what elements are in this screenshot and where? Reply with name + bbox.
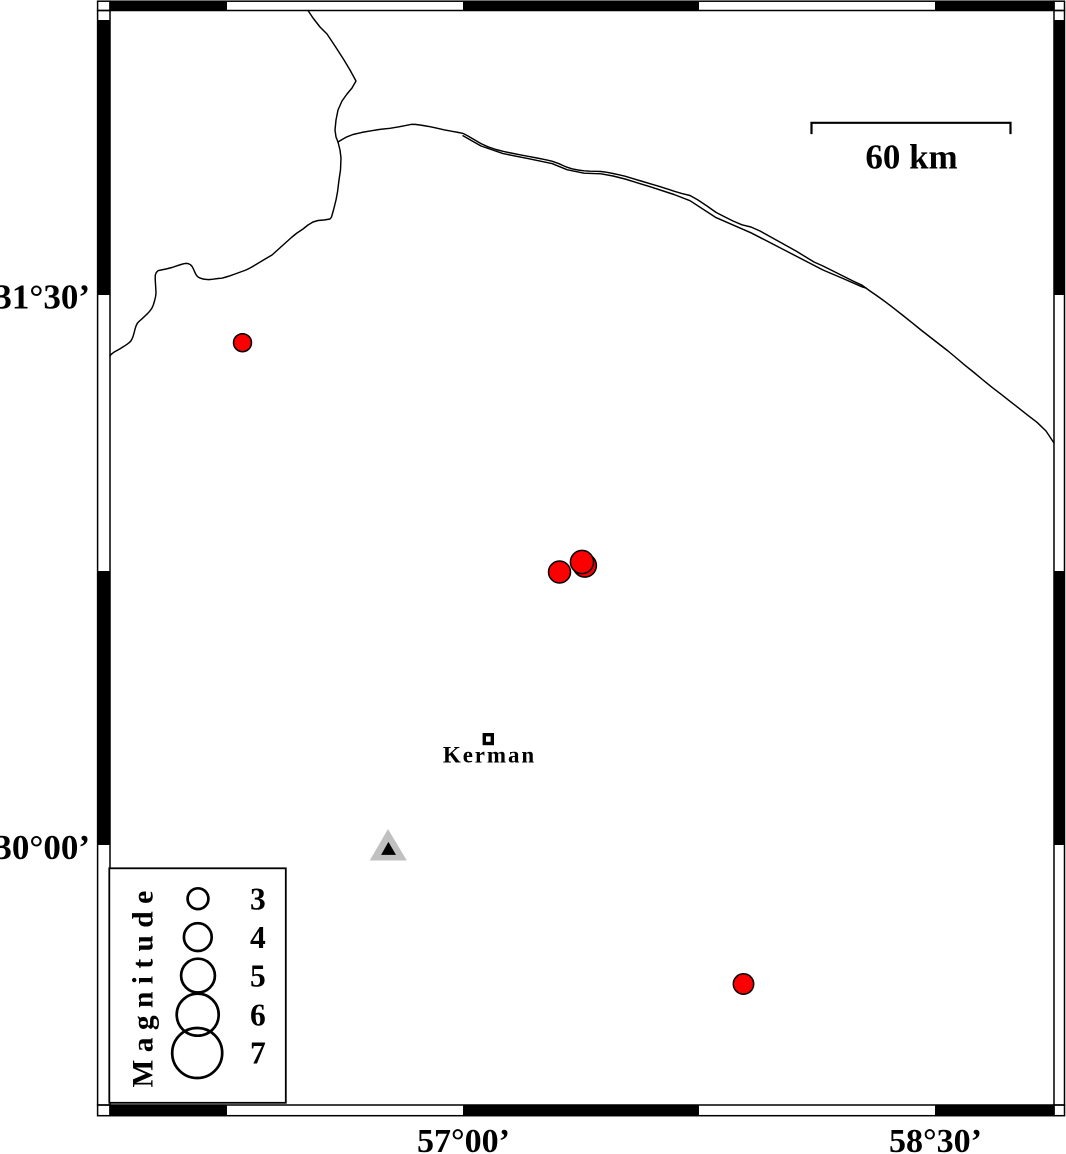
svg-text:Kerman: Kerman (443, 743, 536, 768)
svg-text:31°30’: 31°30’ (0, 278, 90, 317)
svg-text:7: 7 (250, 1036, 266, 1071)
svg-text:58°30’: 58°30’ (889, 1123, 982, 1154)
svg-text:60 km: 60 km (865, 137, 957, 176)
svg-text:5: 5 (250, 958, 266, 993)
svg-text:6: 6 (250, 997, 266, 1032)
svg-text:57°00’: 57°00’ (417, 1123, 510, 1154)
svg-text:30°00’: 30°00’ (0, 828, 90, 867)
svg-text:3: 3 (250, 881, 266, 916)
svg-text:4: 4 (250, 920, 266, 955)
svg-text:M a g n i t u d e: M a g n i t u d e (128, 891, 160, 1088)
